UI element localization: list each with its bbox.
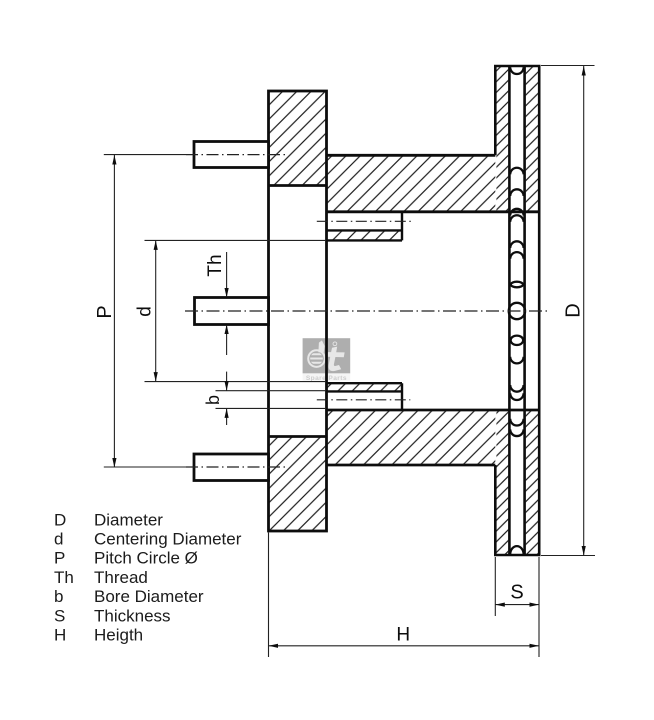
svg-text:P: P — [94, 305, 116, 318]
svg-text:D: D — [563, 303, 585, 317]
svg-text:b: b — [203, 395, 223, 405]
svg-text:H: H — [396, 625, 410, 646]
svg-text:Thickness: Thickness — [94, 606, 171, 625]
svg-text:Diameter: Diameter — [94, 510, 163, 529]
svg-text:d: d — [135, 306, 156, 317]
svg-text:Heigth: Heigth — [94, 626, 143, 645]
svg-text:P: P — [54, 549, 65, 568]
svg-text:Thread: Thread — [94, 568, 148, 587]
svg-text:b: b — [54, 587, 63, 606]
svg-text:H: H — [54, 626, 66, 645]
svg-text:Th: Th — [54, 568, 74, 587]
svg-text:Centering Diameter: Centering Diameter — [94, 530, 242, 549]
svg-text:D: D — [54, 510, 66, 529]
svg-text:S: S — [54, 606, 65, 625]
svg-text:Pitch Circle Ø: Pitch Circle Ø — [94, 549, 198, 568]
svg-text:S: S — [510, 581, 523, 603]
svg-text:Th: Th — [205, 254, 226, 276]
svg-text:Bore Diameter: Bore Diameter — [94, 587, 204, 606]
svg-text:d: d — [54, 530, 63, 549]
